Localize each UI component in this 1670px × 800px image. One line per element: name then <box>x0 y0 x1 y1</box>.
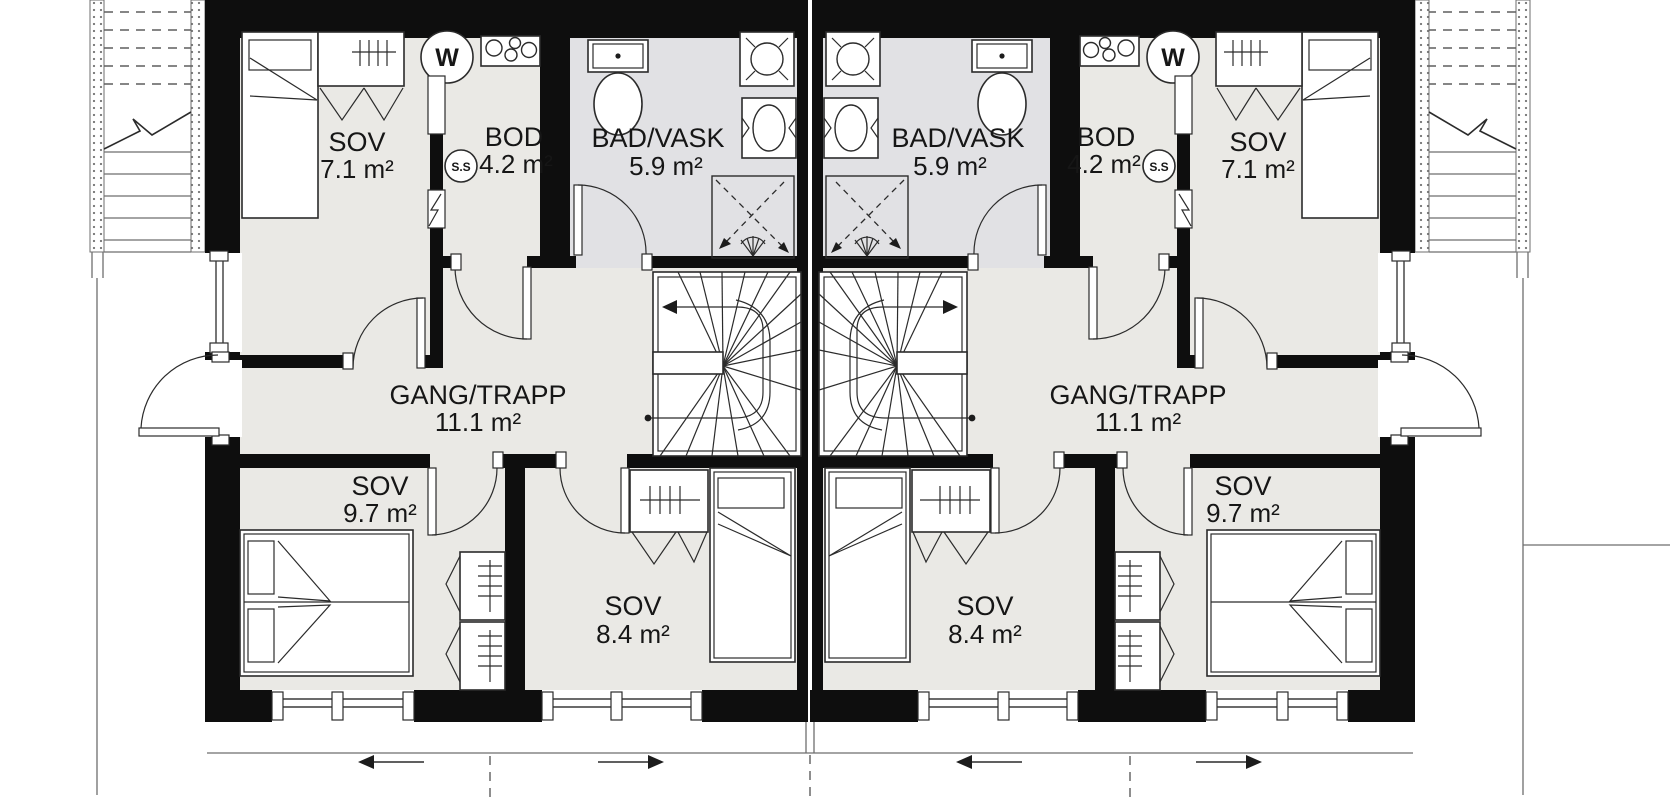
fuse-box-label: S.S <box>451 160 470 174</box>
room-area: 5.9 m² <box>629 151 703 181</box>
floorplan-canvas: SOV 7.1 m² BOD 4.2 m² BAD/VASK 5.9 m² GA… <box>0 0 1670 800</box>
room-area: 9.7 m² <box>1206 498 1280 528</box>
room-area: 11.1 m² <box>1095 407 1182 437</box>
room-area: 7.1 m² <box>320 154 394 184</box>
room-label: SOV <box>1214 471 1271 501</box>
room-label: GANG/TRAPP <box>389 380 566 410</box>
room-label: SOV <box>351 471 408 501</box>
room-label: BOD <box>485 122 544 152</box>
water-heater-label: W <box>1161 44 1185 72</box>
room-label: GANG/TRAPP <box>1049 380 1226 410</box>
room-label: SOV <box>956 591 1013 621</box>
room-area: 4.2 m² <box>479 149 553 179</box>
room-area: 9.7 m² <box>343 498 417 528</box>
room-label: BOD <box>1077 122 1136 152</box>
water-heater-label: W <box>435 44 459 72</box>
room-label: SOV <box>604 591 661 621</box>
room-area: 5.9 m² <box>913 151 987 181</box>
room-area: 4.2 m² <box>1067 149 1141 179</box>
room-area: 11.1 m² <box>435 407 522 437</box>
fuse-box-label: S.S <box>1149 160 1168 174</box>
room-label: SOV <box>328 127 385 157</box>
room-area: 8.4 m² <box>596 619 670 649</box>
room-area: 8.4 m² <box>948 619 1022 649</box>
room-label: BAD/VASK <box>591 123 724 153</box>
room-label: SOV <box>1229 127 1286 157</box>
room-label: BAD/VASK <box>891 123 1024 153</box>
room-area: 7.1 m² <box>1221 154 1295 184</box>
floorplan-svg: SOV 7.1 m² BOD 4.2 m² BAD/VASK 5.9 m² GA… <box>0 0 1670 800</box>
